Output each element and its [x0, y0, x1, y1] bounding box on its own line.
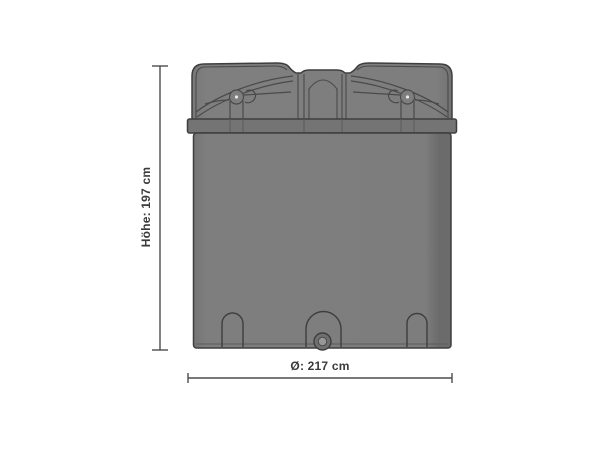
tank-drawing: [0, 0, 600, 450]
diameter-dimension-line: [188, 373, 452, 383]
tank-body: [194, 133, 452, 350]
tank-dimension-diagram: Höhe: 197 cm Ø: 217 cm: [0, 0, 600, 450]
tank-rim-band: [188, 119, 457, 133]
height-dimension-label: Höhe: 197 cm: [138, 147, 154, 267]
tank-lid: [192, 63, 452, 122]
diameter-dimension-label: Ø: 217 cm: [250, 358, 390, 374]
height-dimension-line: [152, 66, 168, 350]
drain-outlet: [314, 333, 331, 350]
